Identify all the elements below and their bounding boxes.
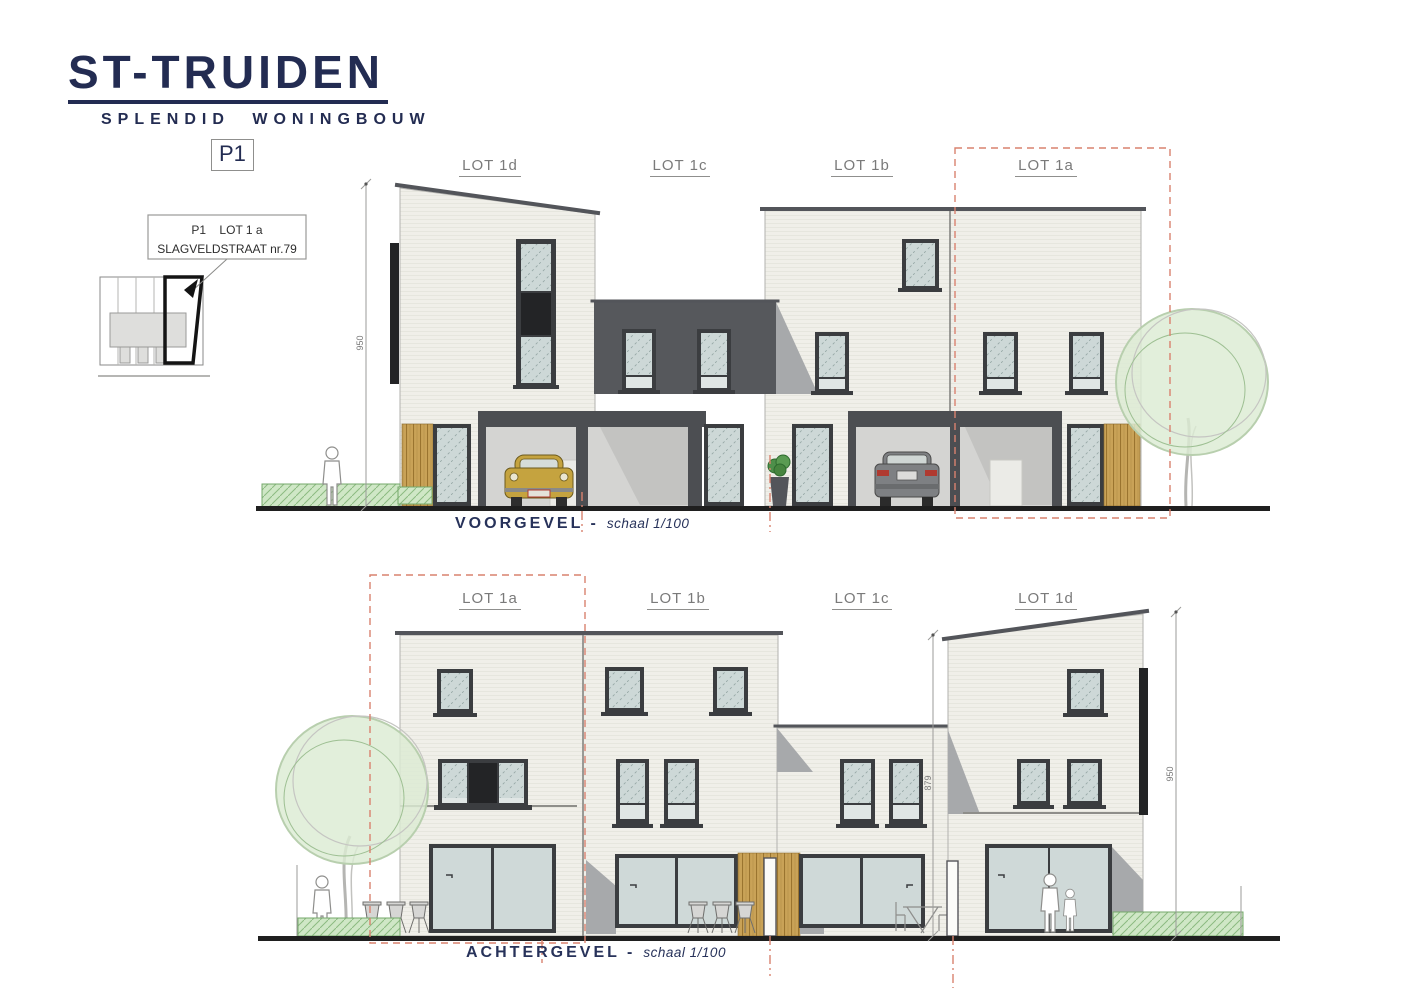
boundary-post <box>764 858 776 936</box>
window <box>612 759 653 828</box>
entry-door <box>433 424 471 506</box>
window-trio <box>434 759 532 810</box>
window <box>979 332 1022 395</box>
project-title: ST-TRUIDEN <box>68 48 388 104</box>
dark-strip <box>1139 668 1148 815</box>
lot-label: LOT 1b <box>608 590 748 610</box>
window <box>693 329 735 394</box>
lot-label: LOT 1b <box>792 157 932 177</box>
window <box>601 667 648 716</box>
window <box>1063 759 1106 809</box>
company-subtitle: SPLENDID WONINGBOUW <box>101 111 431 129</box>
dimension-text: 950 <box>355 326 365 360</box>
voorgevel-caption: VOORGEVEL - schaal 1/100 <box>455 515 689 533</box>
achtergevel-drawing <box>258 575 1280 988</box>
entry-door <box>704 424 744 506</box>
sheet-number: P1 <box>211 139 254 171</box>
lot-label: LOT 1d <box>976 590 1116 610</box>
boundary-post <box>947 861 958 936</box>
drawing-sheet: ST-TRUIDEN SPLENDID WONINGBOUW P1 P1 LOT… <box>0 0 1414 1000</box>
window <box>836 759 879 828</box>
lot-label: LOT 1d <box>420 157 560 177</box>
dark-strip <box>390 243 399 384</box>
window <box>1013 759 1054 809</box>
window <box>660 759 703 828</box>
site-building-footprint <box>110 313 186 347</box>
achtergevel-caption: ACHTERGEVEL - schaal 1/100 <box>466 944 726 962</box>
window <box>885 759 927 828</box>
callout-leader-line <box>192 259 227 291</box>
entry-door <box>792 424 833 506</box>
hedge <box>262 484 432 507</box>
window <box>1063 669 1108 717</box>
voorgevel-drawing <box>256 148 1270 532</box>
window <box>898 239 942 292</box>
lot-label: LOT 1c <box>792 590 932 610</box>
window <box>618 329 660 394</box>
lot-label: LOT 1a <box>420 590 560 610</box>
entry-door <box>1067 424 1104 506</box>
callout-line-1: P1 LOT 1 a <box>148 221 306 240</box>
lot-label: LOT 1c <box>610 157 750 177</box>
window <box>811 332 853 395</box>
callout-line-2: SLAGVELDSTRAAT nr.79 <box>148 240 306 259</box>
sliding-door <box>799 854 925 928</box>
lot-label: LOT 1a <box>976 157 1116 177</box>
sliding-door <box>429 844 556 933</box>
window <box>1065 332 1108 395</box>
window <box>709 667 752 716</box>
wood-slat-panel <box>1104 424 1140 506</box>
ground-line <box>256 506 1270 511</box>
ground-line <box>258 936 1280 941</box>
dimension-text: 950 <box>1165 757 1175 791</box>
vertical-window-strip <box>513 239 559 389</box>
dimension-text: 879 <box>923 766 933 800</box>
lot-callout: P1 LOT 1 a SLAGVELDSTRAAT nr.79 <box>148 221 306 259</box>
window <box>433 669 477 717</box>
